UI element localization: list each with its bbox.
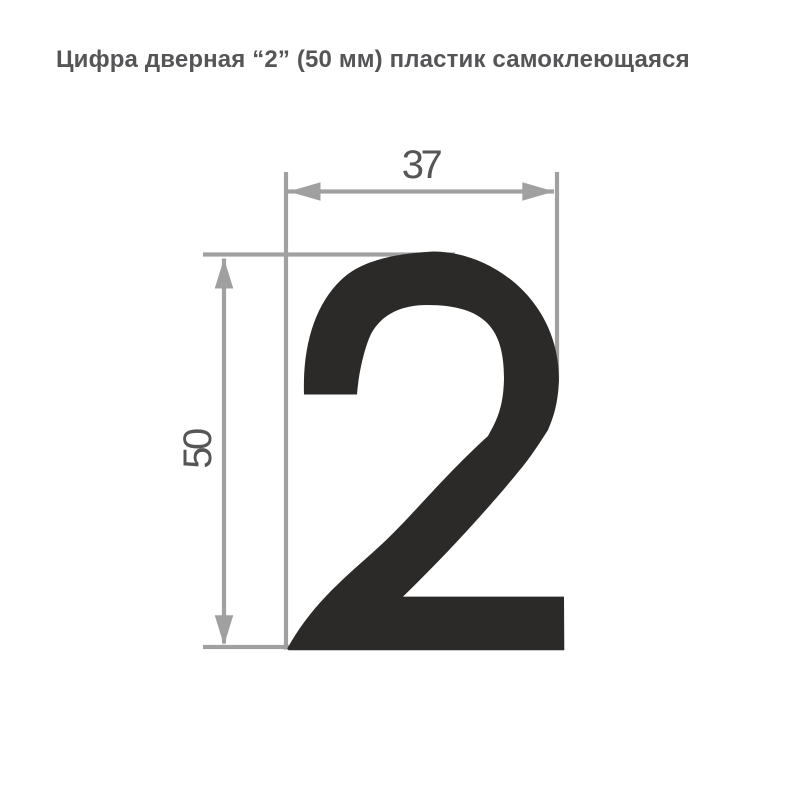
svg-text:37: 37 <box>402 143 442 187</box>
svg-text:50: 50 <box>176 429 220 469</box>
